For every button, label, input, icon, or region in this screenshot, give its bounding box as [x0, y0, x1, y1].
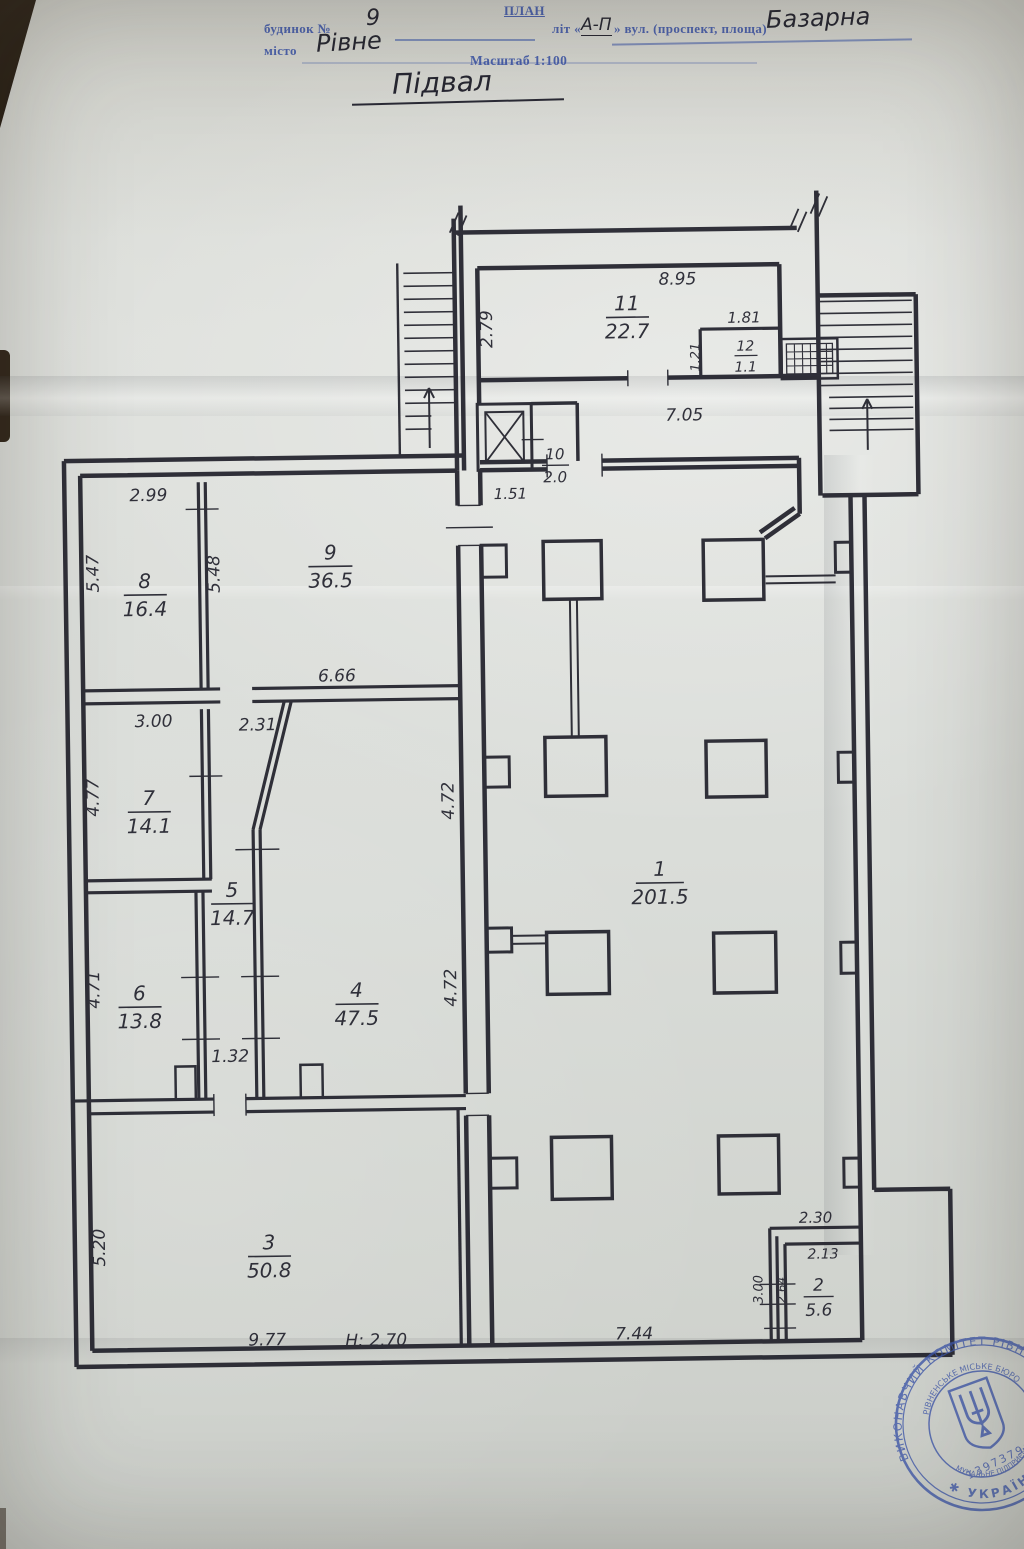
interior-walls	[62, 328, 794, 1351]
dim-299: 2.99	[129, 486, 167, 507]
svg-text:8: 8	[138, 569, 151, 593]
stairs-left	[397, 263, 457, 457]
dim-230: 2.30	[799, 1208, 833, 1226]
door-ticks	[173, 370, 678, 1120]
dim-279: 2.79	[477, 310, 498, 348]
svg-text:13.8: 13.8	[117, 1009, 162, 1034]
stairs-direction-arrow	[424, 388, 435, 448]
svg-text:2.0: 2.0	[543, 468, 567, 486]
dim-300: 3.00	[135, 712, 173, 733]
trident-icon	[960, 1387, 996, 1438]
svg-text:11: 11	[614, 291, 640, 315]
dim-213: 2.13	[807, 1246, 838, 1262]
dim-300b: 3.00	[751, 1275, 766, 1304]
official-stamp: ВИКОНАВЧИЙ КОМІТЕТ РІВНЕНСЬКОЇ ✱ УКРАЇНА…	[865, 1307, 1024, 1536]
photo-of-floor-plan: ПЛАН будинок № 9 літ « А-П » вул. (просп…	[0, 0, 1024, 1549]
dim-520: 5.20	[90, 1229, 111, 1267]
dim-h270: Н: 2.70	[345, 1330, 407, 1351]
dim-548: 5.48	[204, 555, 225, 593]
room-label-1: 1201.5	[631, 856, 689, 909]
dim-471: 4.71	[84, 971, 105, 1009]
svg-text:5: 5	[225, 878, 238, 902]
dim-895: 8.95	[658, 269, 696, 290]
wall-pilasters	[481, 540, 860, 1192]
svg-text:5.6: 5.6	[805, 1300, 832, 1320]
svg-text:22.7: 22.7	[605, 319, 650, 344]
room-label-10: 102.0	[542, 445, 570, 486]
room-label-11: 1122.7	[604, 291, 650, 344]
room-label-8: 816.4	[122, 569, 167, 622]
room-label-6: 613.8	[117, 981, 162, 1034]
svg-text:10: 10	[545, 445, 564, 463]
svg-text:47.5: 47.5	[334, 1006, 379, 1031]
svg-text:14.1: 14.1	[127, 814, 172, 839]
dim-547: 5.47	[83, 554, 104, 592]
svg-text:1.1: 1.1	[734, 359, 756, 375]
svg-text:4: 4	[350, 978, 363, 1002]
room-label-4: 447.5	[334, 978, 379, 1031]
dim-472a: 4.72	[438, 782, 459, 820]
room-label-7: 714.1	[126, 786, 171, 839]
svg-text:16.4: 16.4	[123, 597, 168, 622]
dim-472b: 4.72	[441, 969, 462, 1007]
svg-text:1: 1	[653, 857, 666, 881]
room-label-9: 936.5	[308, 540, 353, 593]
svg-text:12: 12	[736, 338, 754, 354]
dim-705: 7.05	[665, 405, 703, 426]
dim-181: 1.81	[727, 308, 761, 326]
svg-text:36.5: 36.5	[308, 568, 353, 593]
svg-text:2: 2	[813, 1276, 824, 1296]
dim-977: 9.77	[248, 1330, 286, 1351]
dim-264: 2.64	[774, 1277, 788, 1304]
dim-477: 4.77	[83, 778, 104, 816]
svg-text:9: 9	[324, 540, 337, 564]
dim-132: 1.32	[211, 1047, 249, 1068]
svg-text:7: 7	[142, 786, 155, 810]
stairs-right	[820, 300, 914, 450]
room-label-3: 350.8	[246, 1230, 291, 1283]
dim-231: 2.31	[239, 715, 277, 736]
room-label-2: 25.6	[803, 1275, 834, 1320]
room-label-5: 514.7	[209, 877, 255, 930]
dim-121: 1.21	[688, 343, 703, 372]
svg-text:6: 6	[133, 981, 146, 1005]
svg-text:3: 3	[262, 1230, 275, 1254]
room-label-12: 121.1	[734, 338, 758, 375]
svg-text:14.7: 14.7	[210, 905, 255, 930]
floor-plan-drawing: 816.4 936.5 714.1 514.7 613.8 447.5 350.…	[0, 0, 1024, 1549]
dim-744: 7.44	[615, 1324, 653, 1345]
dim-151: 1.51	[494, 485, 528, 503]
svg-text:50.8: 50.8	[247, 1258, 292, 1283]
dim-666: 6.66	[318, 666, 356, 687]
stairs-direction-arrow	[862, 399, 873, 450]
svg-text:201.5: 201.5	[631, 884, 689, 909]
room-labels: 816.4 936.5 714.1 514.7 613.8 447.5 350.…	[107, 289, 834, 1331]
